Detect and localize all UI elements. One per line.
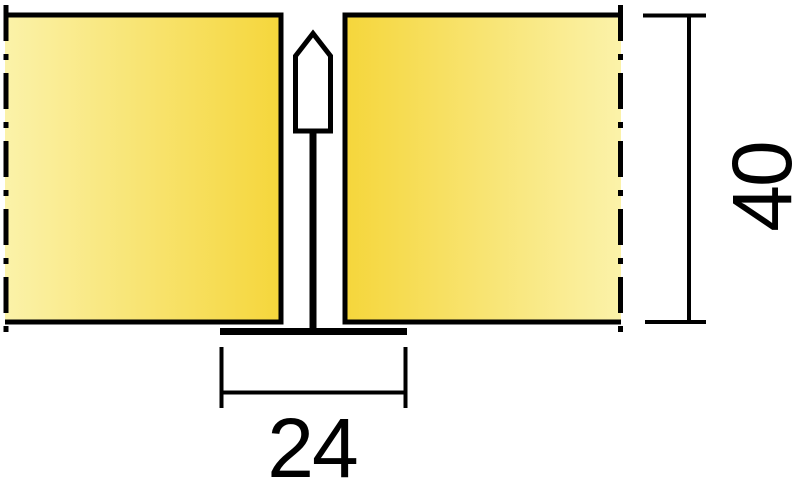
drawing-canvas: 24 40	[0, 0, 800, 487]
right-panel	[345, 5, 621, 338]
width-dimension-label: 24	[267, 401, 357, 487]
height-dimension-label: 40	[715, 142, 800, 231]
right-panel-fill	[345, 15, 621, 322]
left-panel	[5, 5, 281, 338]
profile-stem	[310, 131, 317, 329]
height-dimension: 40	[643, 15, 800, 322]
profile-bulb	[296, 34, 331, 132]
width-dimension: 24	[222, 347, 406, 487]
technical-drawing: 24 40	[0, 0, 800, 487]
profile-flange	[220, 328, 407, 335]
left-panel-fill	[5, 15, 281, 322]
